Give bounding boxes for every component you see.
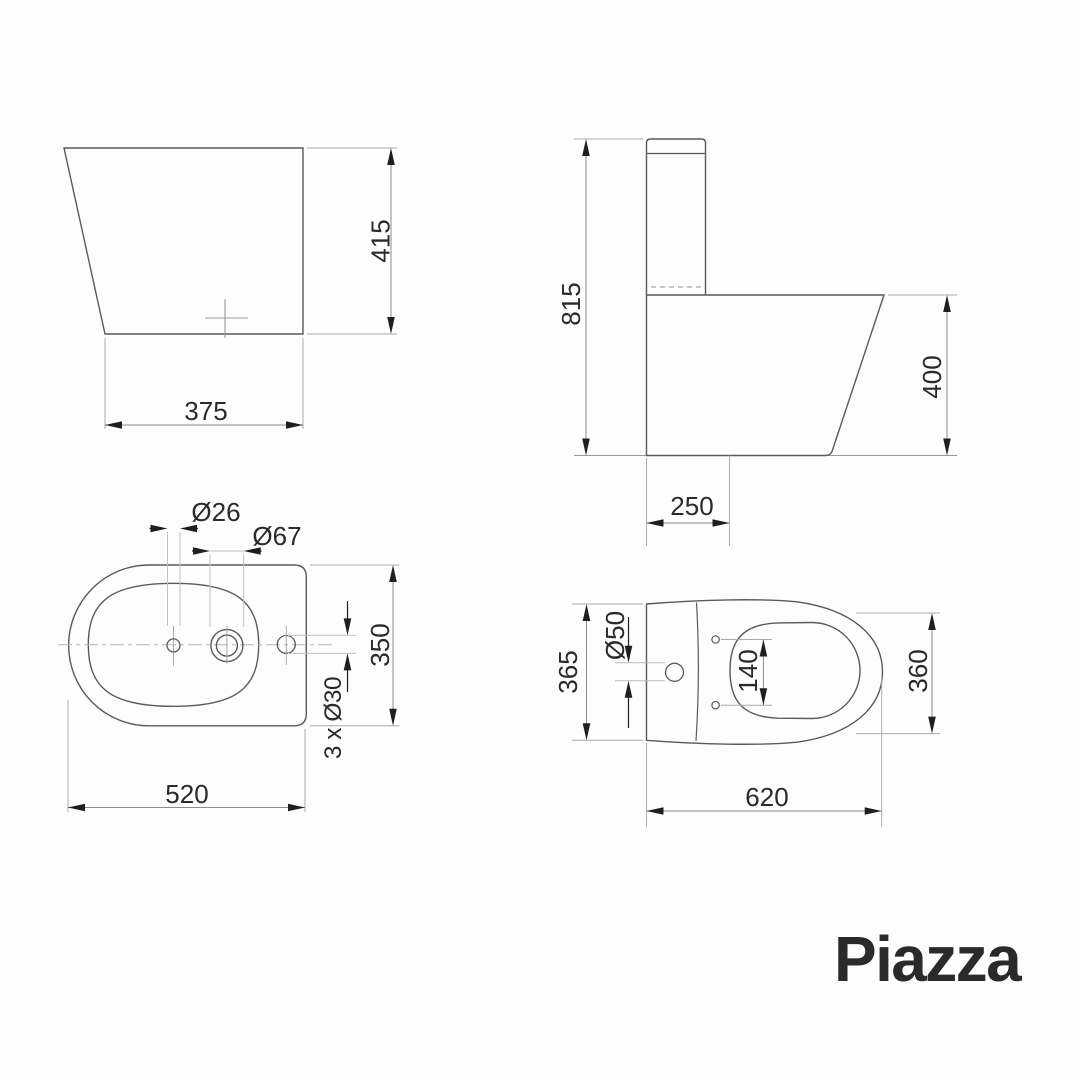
- svg-text:Piazza: Piazza: [834, 923, 1022, 995]
- svg-text:520: 520: [165, 779, 208, 809]
- svg-text:350: 350: [365, 623, 395, 666]
- svg-text:375: 375: [184, 396, 227, 426]
- svg-text:620: 620: [745, 782, 788, 812]
- svg-text:Ø67: Ø67: [252, 521, 301, 551]
- svg-text:250: 250: [670, 491, 713, 521]
- svg-text:3 x Ø30: 3 x Ø30: [320, 677, 347, 759]
- svg-text:365: 365: [553, 650, 583, 693]
- svg-text:360: 360: [903, 649, 933, 692]
- svg-text:815: 815: [556, 282, 586, 325]
- svg-text:Ø50: Ø50: [600, 611, 630, 660]
- svg-text:140: 140: [733, 649, 763, 692]
- svg-text:Ø26: Ø26: [191, 497, 240, 527]
- svg-text:400: 400: [917, 355, 947, 398]
- svg-text:415: 415: [366, 219, 396, 262]
